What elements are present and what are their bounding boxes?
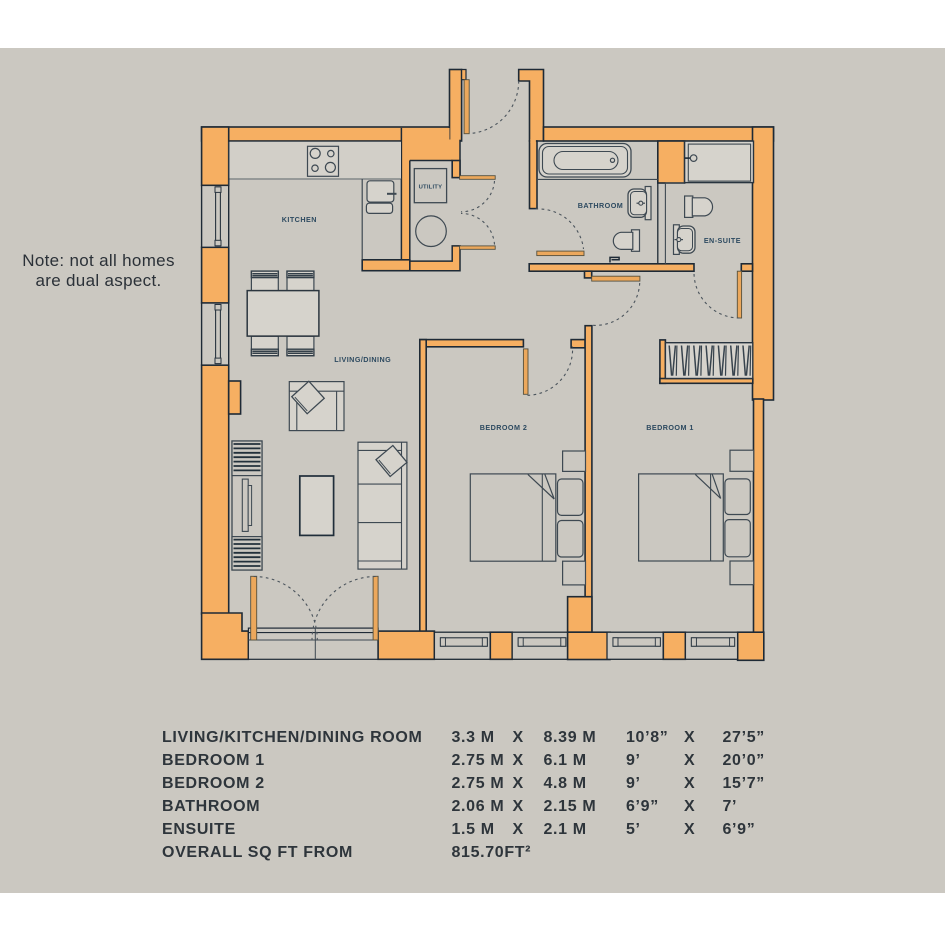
svg-text:LIVING/DINING: LIVING/DINING: [334, 355, 391, 364]
svg-text:UTILITY: UTILITY: [419, 184, 443, 190]
svg-text:BATHROOM: BATHROOM: [578, 201, 623, 210]
svg-text:KITCHEN: KITCHEN: [282, 215, 317, 224]
svg-text:BEDROOM 2: BEDROOM 2: [480, 423, 528, 432]
svg-text:EN-SUITE: EN-SUITE: [704, 236, 741, 245]
svg-text:BEDROOM 1: BEDROOM 1: [646, 423, 694, 432]
